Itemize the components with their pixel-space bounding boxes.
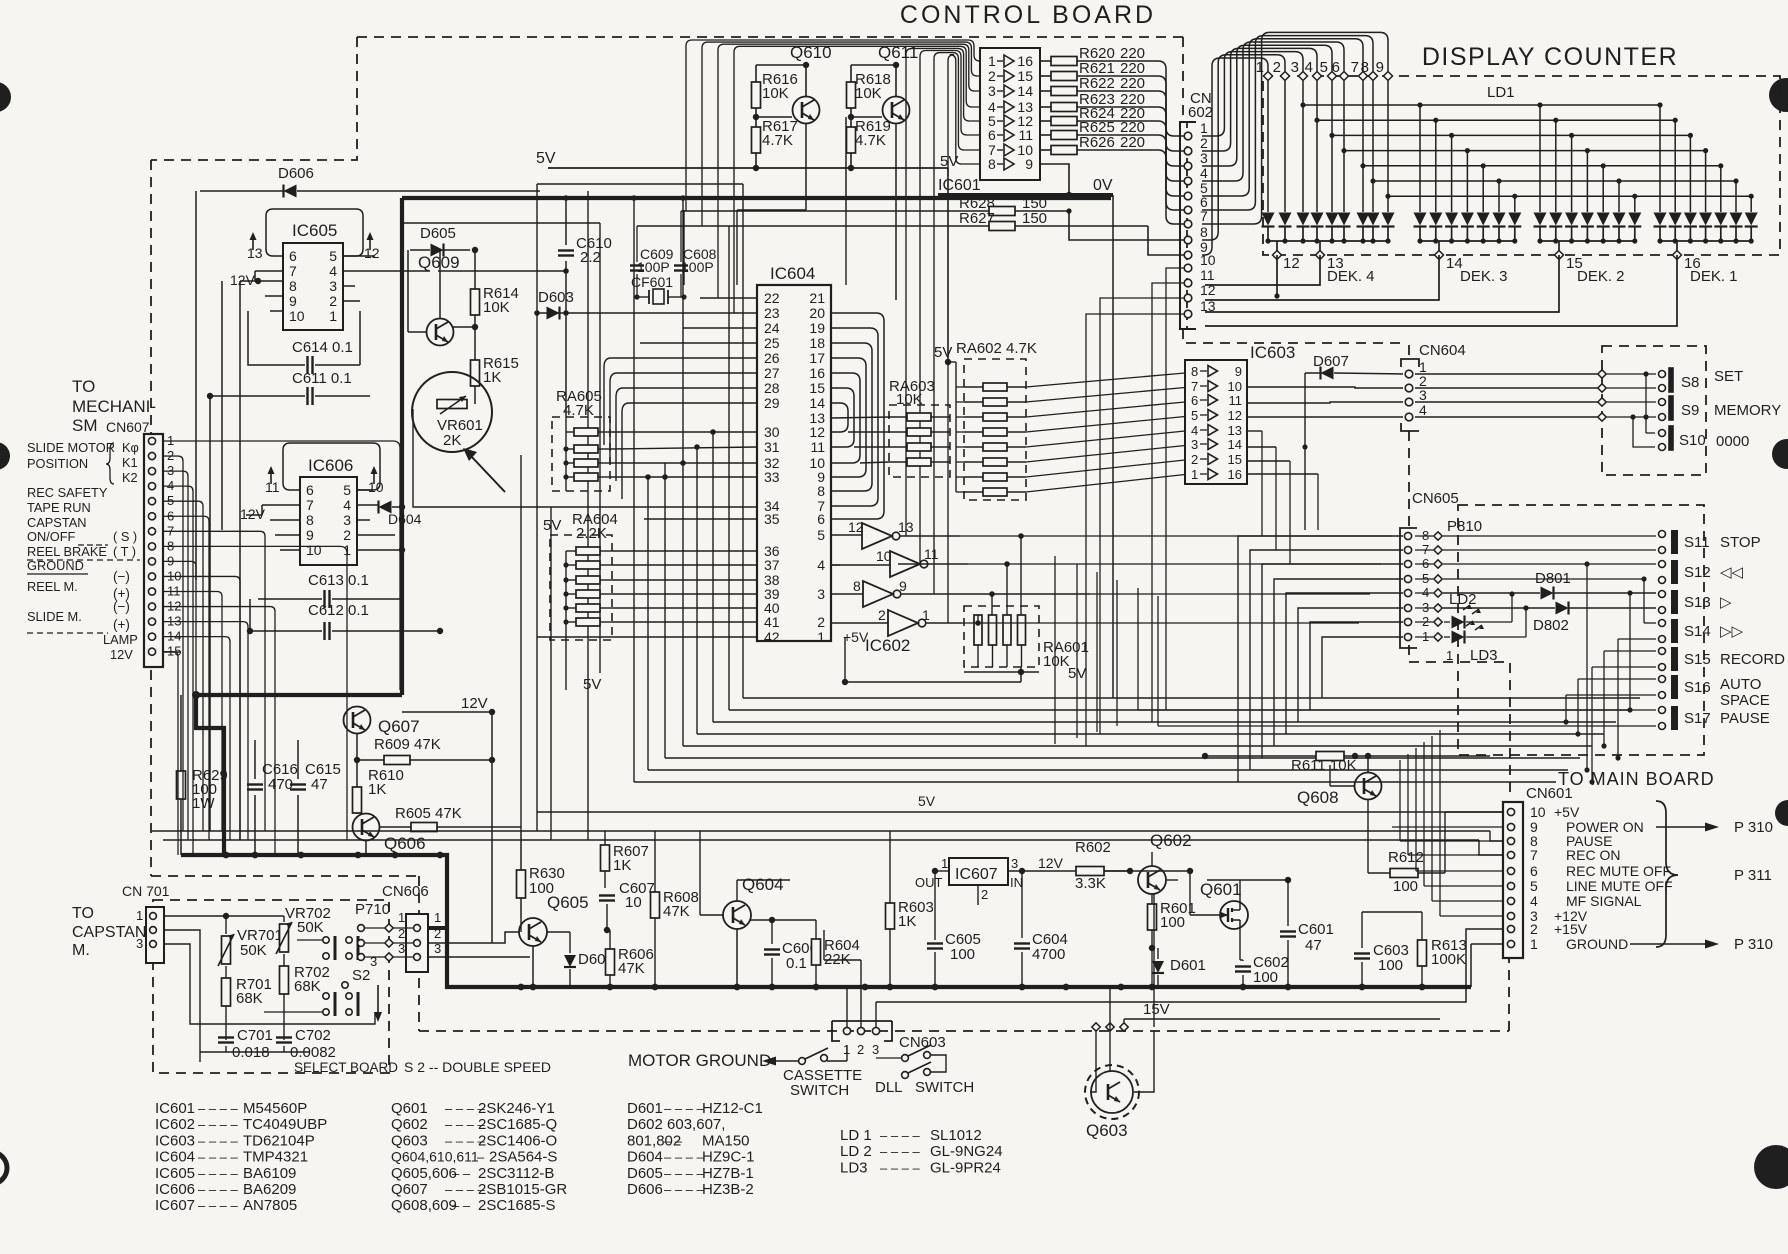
svg-text:10: 10: [1228, 379, 1242, 394]
svg-text:LD1: LD1: [1487, 84, 1515, 101]
svg-text:Kφ: Kφ: [122, 440, 139, 455]
svg-text:9: 9: [1025, 156, 1033, 172]
svg-text:4: 4: [1419, 402, 1427, 418]
svg-text:D601: D601: [627, 1100, 663, 1117]
svg-text:IC601: IC601: [155, 1100, 195, 1117]
svg-text:TO: TO: [72, 905, 94, 922]
svg-text:Q605: Q605: [547, 893, 589, 912]
svg-text:18: 18: [809, 335, 825, 351]
svg-text:REC ON: REC ON: [1566, 847, 1620, 863]
svg-text:SM: SM: [72, 416, 98, 435]
svg-text:C613 0.1: C613 0.1: [308, 572, 369, 589]
svg-text:IC603: IC603: [155, 1132, 195, 1149]
svg-text:9: 9: [899, 578, 907, 594]
svg-text:1: 1: [329, 308, 337, 324]
svg-text:S15: S15: [1684, 651, 1711, 668]
svg-text:SLIDE M.: SLIDE M.: [27, 609, 82, 624]
svg-text:R612: R612: [1388, 849, 1424, 866]
svg-text:GROUND: GROUND: [27, 558, 84, 573]
svg-text:20: 20: [809, 305, 825, 321]
svg-text:1: 1: [1530, 936, 1538, 952]
svg-text:8: 8: [289, 278, 297, 294]
svg-text:15: 15: [1228, 452, 1242, 467]
svg-text:3: 3: [872, 1042, 879, 1057]
svg-text:AN7805: AN7805: [243, 1197, 297, 1214]
svg-text:S8: S8: [1681, 374, 1699, 391]
svg-text:28: 28: [764, 380, 780, 396]
svg-text:D802: D802: [1533, 617, 1569, 634]
svg-text:LAMP: LAMP: [103, 632, 138, 647]
svg-text:(−): (−): [113, 599, 130, 614]
svg-text:7: 7: [306, 497, 314, 513]
svg-text:220: 220: [1120, 134, 1145, 151]
svg-text:8: 8: [988, 156, 996, 172]
svg-text:REEL M.: REEL M.: [27, 579, 78, 594]
svg-text:RA602 4.7K: RA602 4.7K: [956, 340, 1037, 357]
svg-text:1: 1: [817, 629, 825, 645]
svg-text:5V: 5V: [940, 153, 958, 170]
svg-text:HZ7B-1: HZ7B-1: [702, 1165, 754, 1182]
svg-text:– – – –: – – – –: [198, 1150, 239, 1165]
svg-text:4: 4: [329, 263, 337, 279]
svg-text:– – – –: – – – –: [880, 1144, 921, 1159]
svg-text:12: 12: [1283, 255, 1300, 272]
svg-text:27: 27: [764, 365, 780, 381]
svg-text:9: 9: [1235, 364, 1242, 379]
svg-text:1K: 1K: [368, 781, 386, 798]
svg-text:3: 3: [1191, 437, 1198, 452]
svg-text:100: 100: [1160, 914, 1185, 931]
svg-text:Q601: Q601: [1200, 880, 1242, 899]
svg-text:(−): (−): [113, 569, 130, 584]
svg-text:CN607: CN607: [106, 419, 150, 435]
svg-text:M.: M.: [72, 942, 90, 959]
svg-text:Q602: Q602: [391, 1116, 428, 1133]
svg-text:7: 7: [1530, 847, 1538, 863]
svg-text:1: 1: [1200, 120, 1208, 136]
svg-text:Q609: Q609: [418, 253, 460, 272]
svg-text:2SA564-S: 2SA564-S: [489, 1149, 557, 1166]
svg-text:3: 3: [1291, 59, 1299, 76]
svg-text:11: 11: [1200, 267, 1215, 283]
svg-text:D605: D605: [627, 1165, 663, 1182]
svg-text:10K: 10K: [483, 299, 510, 316]
svg-text:41: 41: [764, 614, 780, 630]
svg-text:21: 21: [809, 290, 825, 306]
svg-text:P 310: P 310: [1734, 936, 1773, 953]
svg-text:▷: ▷: [1720, 594, 1732, 611]
svg-text:Q608: Q608: [1297, 788, 1339, 807]
svg-text:47K: 47K: [663, 903, 690, 920]
svg-text:15V: 15V: [1143, 1001, 1170, 1018]
svg-text:ON/OFF: ON/OFF: [27, 529, 76, 544]
svg-text:42: 42: [764, 629, 780, 645]
svg-text:17: 17: [809, 350, 825, 366]
svg-text:5: 5: [1320, 59, 1328, 76]
svg-text:29: 29: [764, 395, 780, 411]
svg-text:D604: D604: [388, 511, 422, 527]
svg-text:1K: 1K: [898, 913, 916, 930]
svg-text:S16: S16: [1684, 679, 1711, 696]
svg-text:DLL: DLL: [875, 1079, 903, 1096]
svg-text:C612 0.1: C612 0.1: [308, 602, 369, 619]
svg-text:2: 2: [857, 1042, 864, 1057]
svg-text:47: 47: [311, 776, 328, 793]
svg-text:15: 15: [809, 380, 825, 396]
svg-text:3.3K: 3.3K: [1075, 875, 1106, 892]
svg-text:3: 3: [329, 278, 337, 294]
svg-text:IC606: IC606: [308, 456, 353, 475]
svg-text:13: 13: [1228, 423, 1242, 438]
svg-text:SWITCH: SWITCH: [790, 1082, 849, 1099]
svg-text:R626: R626: [1079, 134, 1115, 151]
svg-text:4.7K: 4.7K: [855, 132, 886, 149]
svg-text:5: 5: [1191, 408, 1198, 423]
svg-text:IC605: IC605: [292, 221, 337, 240]
svg-text:14: 14: [1228, 437, 1242, 452]
svg-text:1: 1: [398, 910, 405, 925]
svg-text:S13: S13: [1684, 594, 1711, 611]
svg-text:– – – –: – – – –: [198, 1117, 239, 1132]
svg-text:Q608,609: Q608,609: [391, 1197, 457, 1214]
svg-text:5: 5: [329, 248, 337, 264]
svg-text:5V: 5V: [536, 150, 556, 167]
svg-text:11: 11: [810, 439, 825, 455]
svg-text:100P: 100P: [681, 259, 714, 275]
svg-text:13: 13: [247, 245, 263, 261]
svg-text:Q604: Q604: [742, 875, 784, 894]
svg-text:GL-9PR24: GL-9PR24: [930, 1159, 1001, 1176]
svg-text:MECHANI-: MECHANI-: [72, 397, 156, 416]
svg-text:S10: S10: [1679, 432, 1706, 449]
svg-text:2: 2: [1273, 59, 1281, 76]
svg-text:2: 2: [343, 527, 351, 543]
svg-text:S9: S9: [1681, 402, 1699, 419]
svg-text:7: 7: [1191, 379, 1198, 394]
svg-text:2.2: 2.2: [580, 249, 601, 266]
svg-text:P710: P710: [355, 901, 390, 918]
svg-text:– – – –: – – – –: [198, 1182, 239, 1197]
svg-text:Q607: Q607: [378, 717, 420, 736]
svg-text:K1: K1: [122, 455, 138, 470]
svg-text:12: 12: [1200, 282, 1216, 298]
svg-text:TMP4321: TMP4321: [243, 1149, 308, 1166]
svg-text:19: 19: [809, 320, 825, 336]
svg-text:HZ12-C1: HZ12-C1: [702, 1100, 763, 1117]
svg-text:D605: D605: [420, 225, 456, 242]
svg-text:3: 3: [1419, 387, 1427, 403]
svg-text:2: 2: [981, 887, 988, 902]
svg-text:Q603: Q603: [391, 1132, 428, 1149]
svg-text:SLIDE MOTOR: SLIDE MOTOR: [27, 440, 115, 455]
svg-text:LD3: LD3: [840, 1159, 868, 1176]
svg-text:602: 602: [1188, 104, 1213, 121]
svg-text:D606: D606: [627, 1181, 663, 1198]
svg-text:47: 47: [1305, 937, 1322, 954]
svg-text:DEK. 3: DEK. 3: [1460, 268, 1508, 285]
svg-text:Q602: Q602: [1150, 831, 1192, 850]
svg-text:24: 24: [764, 320, 780, 336]
svg-text:AUTO: AUTO: [1720, 676, 1761, 693]
svg-text:P 311: P 311: [1734, 867, 1772, 884]
svg-text:6: 6: [988, 127, 996, 143]
svg-text:TO: TO: [72, 377, 95, 396]
svg-text:C601: C601: [1298, 921, 1334, 938]
svg-text:100: 100: [1378, 957, 1403, 974]
svg-text:10: 10: [1200, 252, 1216, 268]
svg-text:LD3: LD3: [1470, 647, 1498, 664]
svg-text:12V: 12V: [461, 695, 488, 712]
svg-text:Q605,606: Q605,606: [391, 1165, 457, 1182]
svg-text:M54560P: M54560P: [243, 1100, 307, 1117]
svg-text:CN 701: CN 701: [122, 883, 170, 899]
svg-text:D601: D601: [1170, 957, 1206, 974]
svg-text:3: 3: [1200, 150, 1208, 166]
svg-text:3: 3: [988, 83, 996, 99]
svg-text:13: 13: [898, 519, 914, 535]
svg-text:5: 5: [1530, 878, 1538, 894]
svg-text:1W: 1W: [192, 795, 215, 812]
svg-text:11: 11: [1018, 127, 1033, 143]
svg-text:PAUSE: PAUSE: [1720, 710, 1770, 727]
svg-text:4: 4: [343, 497, 351, 513]
svg-text:S 2 -- DOUBLE SPEED: S 2 -- DOUBLE SPEED: [404, 1059, 551, 1075]
svg-text:0000: 0000: [1716, 433, 1749, 450]
svg-text:47K: 47K: [618, 960, 645, 977]
svg-text:CAPSTAN: CAPSTAN: [27, 515, 87, 530]
svg-text:S2: S2: [352, 967, 370, 984]
svg-text:IC603: IC603: [1250, 343, 1295, 362]
svg-text:12: 12: [364, 245, 380, 261]
svg-text:16: 16: [1017, 53, 1033, 69]
svg-text:– –: – –: [452, 1166, 471, 1181]
svg-text:16: 16: [1228, 467, 1242, 482]
svg-text:Q606: Q606: [384, 834, 426, 853]
svg-text:2: 2: [878, 607, 886, 623]
svg-text:4.7K: 4.7K: [762, 132, 793, 149]
svg-text:– – – –: – – – –: [198, 1101, 239, 1116]
svg-text:– – – –: – – – –: [880, 1128, 921, 1143]
svg-text:LD 2: LD 2: [840, 1143, 872, 1160]
svg-text:TAPE RUN: TAPE RUN: [27, 500, 91, 515]
svg-text:GL-9NG24: GL-9NG24: [930, 1143, 1003, 1160]
svg-text:6: 6: [1191, 393, 1198, 408]
svg-text:CN606: CN606: [382, 883, 429, 900]
svg-text:– –: – –: [664, 1133, 683, 1148]
svg-text:0.1: 0.1: [786, 955, 807, 972]
svg-text:MEMORY: MEMORY: [1714, 402, 1781, 419]
svg-text:10: 10: [1530, 804, 1546, 820]
svg-text:BA6109: BA6109: [243, 1165, 296, 1182]
svg-text:STOP: STOP: [1720, 534, 1761, 551]
svg-text:– – – –: – – – –: [664, 1182, 705, 1197]
svg-text:2: 2: [988, 68, 996, 84]
svg-text:DEK. 1: DEK. 1: [1690, 268, 1738, 285]
svg-text:S14: S14: [1684, 623, 1711, 640]
svg-text:10: 10: [306, 542, 322, 558]
svg-text:8: 8: [817, 483, 825, 499]
svg-text:10: 10: [625, 894, 642, 911]
svg-text:D603: D603: [538, 289, 574, 306]
svg-text:1K: 1K: [613, 857, 631, 874]
svg-text:50K: 50K: [240, 942, 267, 959]
svg-text:IC605: IC605: [155, 1165, 195, 1182]
svg-text:22: 22: [764, 290, 780, 306]
svg-text:0.0082: 0.0082: [290, 1044, 336, 1061]
svg-text:( S ): ( S ): [113, 529, 137, 544]
svg-text:CONTROL BOARD: CONTROL BOARD: [900, 1, 1156, 29]
svg-text:2SK246-Y1: 2SK246-Y1: [478, 1100, 555, 1117]
svg-text:12V: 12V: [110, 647, 133, 662]
svg-text:4: 4: [1191, 423, 1198, 438]
svg-text:– –: – –: [452, 1198, 471, 1213]
svg-text:( T ): ( T ): [113, 544, 136, 559]
svg-text:9: 9: [289, 293, 297, 309]
svg-text:3: 3: [1011, 856, 1018, 871]
svg-text:CN604: CN604: [1419, 342, 1466, 359]
svg-text:Q610: Q610: [790, 43, 832, 62]
svg-text:31: 31: [764, 439, 780, 455]
svg-text:12V: 12V: [230, 272, 256, 288]
svg-text:TC4049UBP: TC4049UBP: [243, 1116, 327, 1133]
svg-text:150: 150: [1022, 210, 1047, 227]
svg-text:IC602: IC602: [155, 1116, 195, 1133]
svg-text:1: 1: [922, 607, 930, 623]
svg-text:LD 1: LD 1: [840, 1127, 872, 1144]
svg-text:+15V: +15V: [1554, 921, 1588, 937]
svg-text:3: 3: [398, 941, 405, 956]
svg-text:100: 100: [1393, 878, 1418, 895]
svg-text:SET: SET: [1714, 368, 1743, 385]
svg-text:Q603: Q603: [1086, 1121, 1128, 1140]
svg-text:2SC1685-S: 2SC1685-S: [478, 1197, 556, 1214]
svg-text:50K: 50K: [297, 919, 324, 936]
svg-text:LINE MUTE OFF: LINE MUTE OFF: [1566, 878, 1673, 894]
svg-text:CN601: CN601: [1526, 785, 1573, 802]
svg-text:S17: S17: [1684, 710, 1711, 727]
svg-text:DISPLAY COUNTER: DISPLAY COUNTER: [1422, 43, 1678, 71]
svg-text:8: 8: [306, 512, 314, 528]
svg-text:C614 0.1: C614 0.1: [292, 339, 353, 356]
svg-text:– – – –: – – – –: [664, 1101, 705, 1116]
svg-text:POSITION: POSITION: [27, 456, 88, 471]
svg-text:2: 2: [329, 293, 337, 309]
svg-text:IC601: IC601: [938, 177, 981, 194]
svg-text:1K: 1K: [483, 369, 501, 386]
svg-text:9: 9: [1376, 59, 1384, 76]
svg-text:4: 4: [817, 557, 825, 573]
svg-text:SELECT BOARD: SELECT BOARD: [294, 1060, 398, 1075]
svg-text:K2: K2: [122, 470, 138, 485]
svg-text:DEK. 4: DEK. 4: [1327, 268, 1375, 285]
svg-text:8: 8: [1191, 364, 1198, 379]
svg-text:SL1012: SL1012: [930, 1127, 982, 1144]
svg-text:SPACE: SPACE: [1720, 692, 1770, 709]
svg-text:5V: 5V: [918, 793, 936, 809]
svg-text:IC607: IC607: [155, 1197, 195, 1214]
svg-text:7: 7: [1351, 59, 1359, 76]
svg-text:68K: 68K: [236, 990, 263, 1007]
svg-text:10: 10: [289, 308, 305, 324]
svg-text:11: 11: [265, 479, 280, 495]
svg-text:P 310: P 310: [1734, 819, 1773, 836]
svg-text:9: 9: [306, 527, 314, 543]
svg-text:4.7K: 4.7K: [563, 402, 594, 419]
svg-text:10K: 10K: [762, 85, 789, 102]
svg-text:2: 2: [1530, 921, 1538, 937]
svg-text:S12: S12: [1684, 564, 1711, 581]
svg-text:R609 47K: R609 47K: [374, 736, 441, 753]
svg-text:–: –: [477, 1150, 485, 1165]
svg-text:23: 23: [764, 305, 780, 321]
svg-text:– – – –: – – – –: [880, 1160, 921, 1175]
svg-text:7: 7: [289, 263, 297, 279]
svg-text:6: 6: [817, 511, 825, 527]
svg-text:IC602: IC602: [865, 636, 910, 655]
svg-text:D602 603,607,: D602 603,607,: [627, 1116, 725, 1133]
svg-text:12: 12: [1228, 408, 1242, 423]
svg-text:IC607: IC607: [955, 866, 998, 883]
svg-text:1: 1: [988, 53, 996, 69]
svg-text:4: 4: [1530, 893, 1538, 909]
svg-text:HZ3B-2: HZ3B-2: [702, 1181, 754, 1198]
svg-text:RECORD: RECORD: [1720, 651, 1785, 668]
svg-text:6: 6: [289, 248, 297, 264]
svg-text:0V: 0V: [1093, 177, 1113, 194]
svg-text:– – – –: – – – –: [664, 1150, 705, 1165]
svg-text:100: 100: [950, 946, 975, 963]
svg-text:– – – –: – – – –: [664, 1166, 705, 1181]
svg-text:5: 5: [817, 527, 825, 543]
svg-text:10: 10: [368, 479, 384, 495]
svg-text:100P: 100P: [637, 259, 670, 275]
svg-text:– – – –: – – – –: [198, 1133, 239, 1148]
svg-text:35: 35: [764, 511, 780, 527]
svg-text:+5V: +5V: [1554, 804, 1580, 820]
svg-text:◁◁: ◁◁: [1720, 564, 1744, 581]
svg-text:68K: 68K: [294, 978, 321, 995]
svg-text:D604: D604: [627, 1149, 663, 1166]
svg-text:R622: R622: [1079, 75, 1115, 92]
svg-text:2: 2: [1191, 452, 1198, 467]
svg-text:+5V: +5V: [843, 629, 869, 645]
svg-text:BA6209: BA6209: [243, 1181, 296, 1198]
svg-text:470: 470: [268, 776, 293, 793]
svg-text:10K: 10K: [896, 391, 923, 408]
svg-text:CN605: CN605: [1412, 490, 1459, 507]
svg-text:3: 3: [817, 586, 825, 602]
svg-text:14: 14: [809, 395, 825, 411]
svg-text:DEK. 2: DEK. 2: [1577, 268, 1625, 285]
svg-text:10K: 10K: [855, 85, 882, 102]
svg-text:12: 12: [809, 424, 825, 440]
svg-text:2.2K: 2.2K: [576, 525, 607, 542]
svg-text:MOTOR GROUND: MOTOR GROUND: [628, 1051, 771, 1070]
svg-text:R605 47K: R605 47K: [395, 805, 462, 822]
svg-text:REC MUTE OFF: REC MUTE OFF: [1566, 863, 1671, 879]
svg-text:4700: 4700: [1032, 946, 1065, 963]
svg-text:C702: C702: [295, 1027, 331, 1044]
svg-text:1: 1: [434, 910, 441, 925]
svg-text:13: 13: [1200, 298, 1216, 314]
svg-text:11: 11: [924, 546, 939, 562]
svg-text:S11: S11: [1684, 534, 1710, 551]
svg-text:26: 26: [764, 350, 780, 366]
svg-text:Q607: Q607: [391, 1181, 428, 1198]
svg-text:R602: R602: [1075, 839, 1111, 856]
svg-text:2K: 2K: [443, 432, 461, 449]
svg-text:12V: 12V: [1038, 855, 1064, 871]
